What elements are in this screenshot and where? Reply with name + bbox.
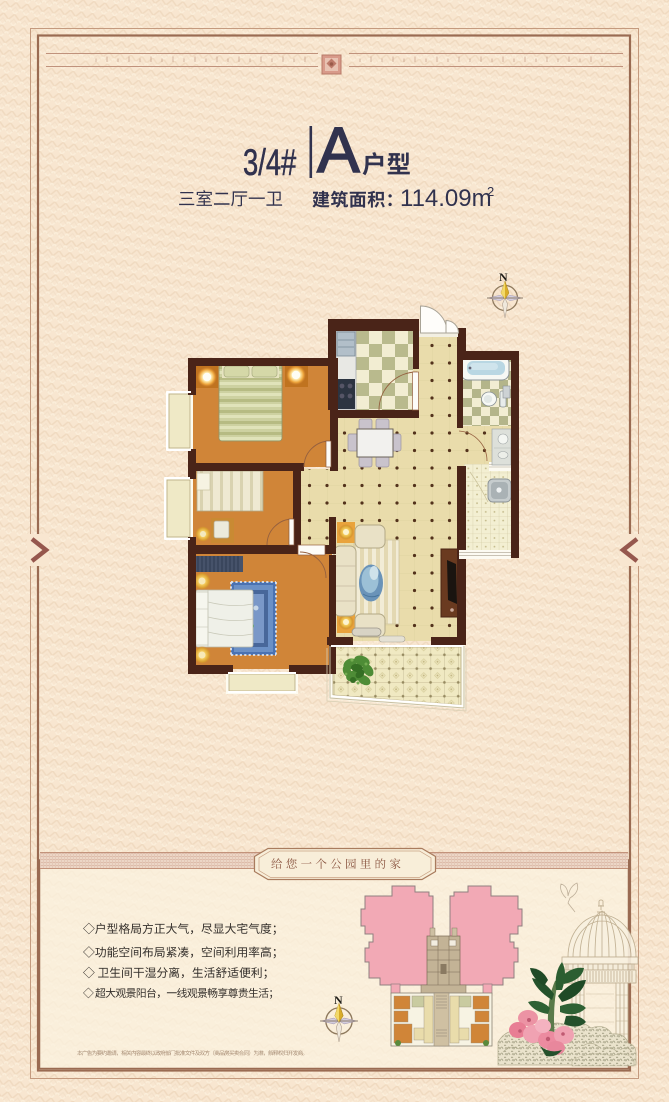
svg-text:A: A — [317, 114, 360, 186]
svg-text:2: 2 — [487, 184, 494, 199]
svg-text:N: N — [334, 993, 343, 1007]
svg-text:3/4#: 3/4# — [243, 142, 296, 183]
svg-text:114.09m: 114.09m — [400, 185, 492, 212]
svg-text:N: N — [499, 270, 508, 284]
